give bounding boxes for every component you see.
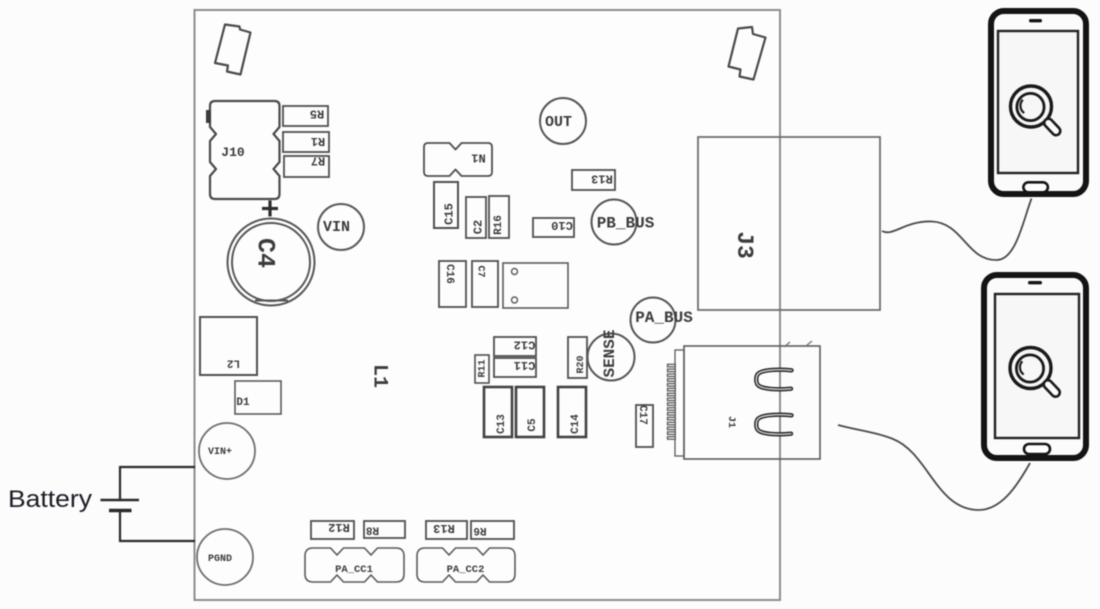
svg-text:N1: N1 xyxy=(471,151,485,165)
svg-text:C11: C11 xyxy=(514,358,536,372)
svg-text:R12: R12 xyxy=(328,520,350,534)
svg-text:C13: C13 xyxy=(496,414,508,434)
svg-text:C7: C7 xyxy=(475,265,486,277)
svg-text:R16: R16 xyxy=(493,215,505,235)
svg-text:C17: C17 xyxy=(636,405,648,425)
svg-text:OUT: OUT xyxy=(545,114,572,131)
svg-text:J10: J10 xyxy=(221,145,245,160)
svg-text:PB_BUS: PB_BUS xyxy=(597,215,655,233)
svg-text:SENSE: SENSE xyxy=(601,329,619,377)
svg-text:L2: L2 xyxy=(227,357,240,369)
svg-text:PGND: PGND xyxy=(208,554,232,565)
svg-text:R11: R11 xyxy=(478,359,489,377)
svg-text:PA_CC1: PA_CC1 xyxy=(335,564,373,576)
svg-text:R13: R13 xyxy=(591,172,613,186)
svg-text:C14: C14 xyxy=(570,414,582,434)
svg-text:C10: C10 xyxy=(551,218,573,232)
svg-text:C5: C5 xyxy=(527,418,539,432)
svg-text:PA_BUS: PA_BUS xyxy=(635,309,693,327)
svg-text:R8: R8 xyxy=(366,524,380,536)
svg-text:R7: R7 xyxy=(311,154,325,168)
svg-text:C4: C4 xyxy=(251,238,280,268)
svg-text:Battery: Battery xyxy=(8,486,92,513)
svg-text:VIN+: VIN+ xyxy=(208,447,232,458)
svg-text:D1: D1 xyxy=(236,397,250,409)
svg-text:R1: R1 xyxy=(311,134,325,148)
svg-text:C2: C2 xyxy=(471,220,485,234)
svg-text:C12: C12 xyxy=(514,337,536,351)
svg-text:L1: L1 xyxy=(368,364,391,388)
svg-text:R5: R5 xyxy=(310,107,324,121)
svg-text:VIN: VIN xyxy=(323,219,350,236)
svg-text:R20: R20 xyxy=(576,355,587,373)
svg-text:R6: R6 xyxy=(473,524,486,536)
svg-text:PA_CC2: PA_CC2 xyxy=(447,564,485,576)
svg-text:J1: J1 xyxy=(725,416,736,428)
svg-text:R13: R13 xyxy=(433,521,455,535)
svg-text:C15: C15 xyxy=(442,203,456,225)
svg-text:C16: C16 xyxy=(443,264,455,284)
svg-text:J3: J3 xyxy=(731,231,757,259)
